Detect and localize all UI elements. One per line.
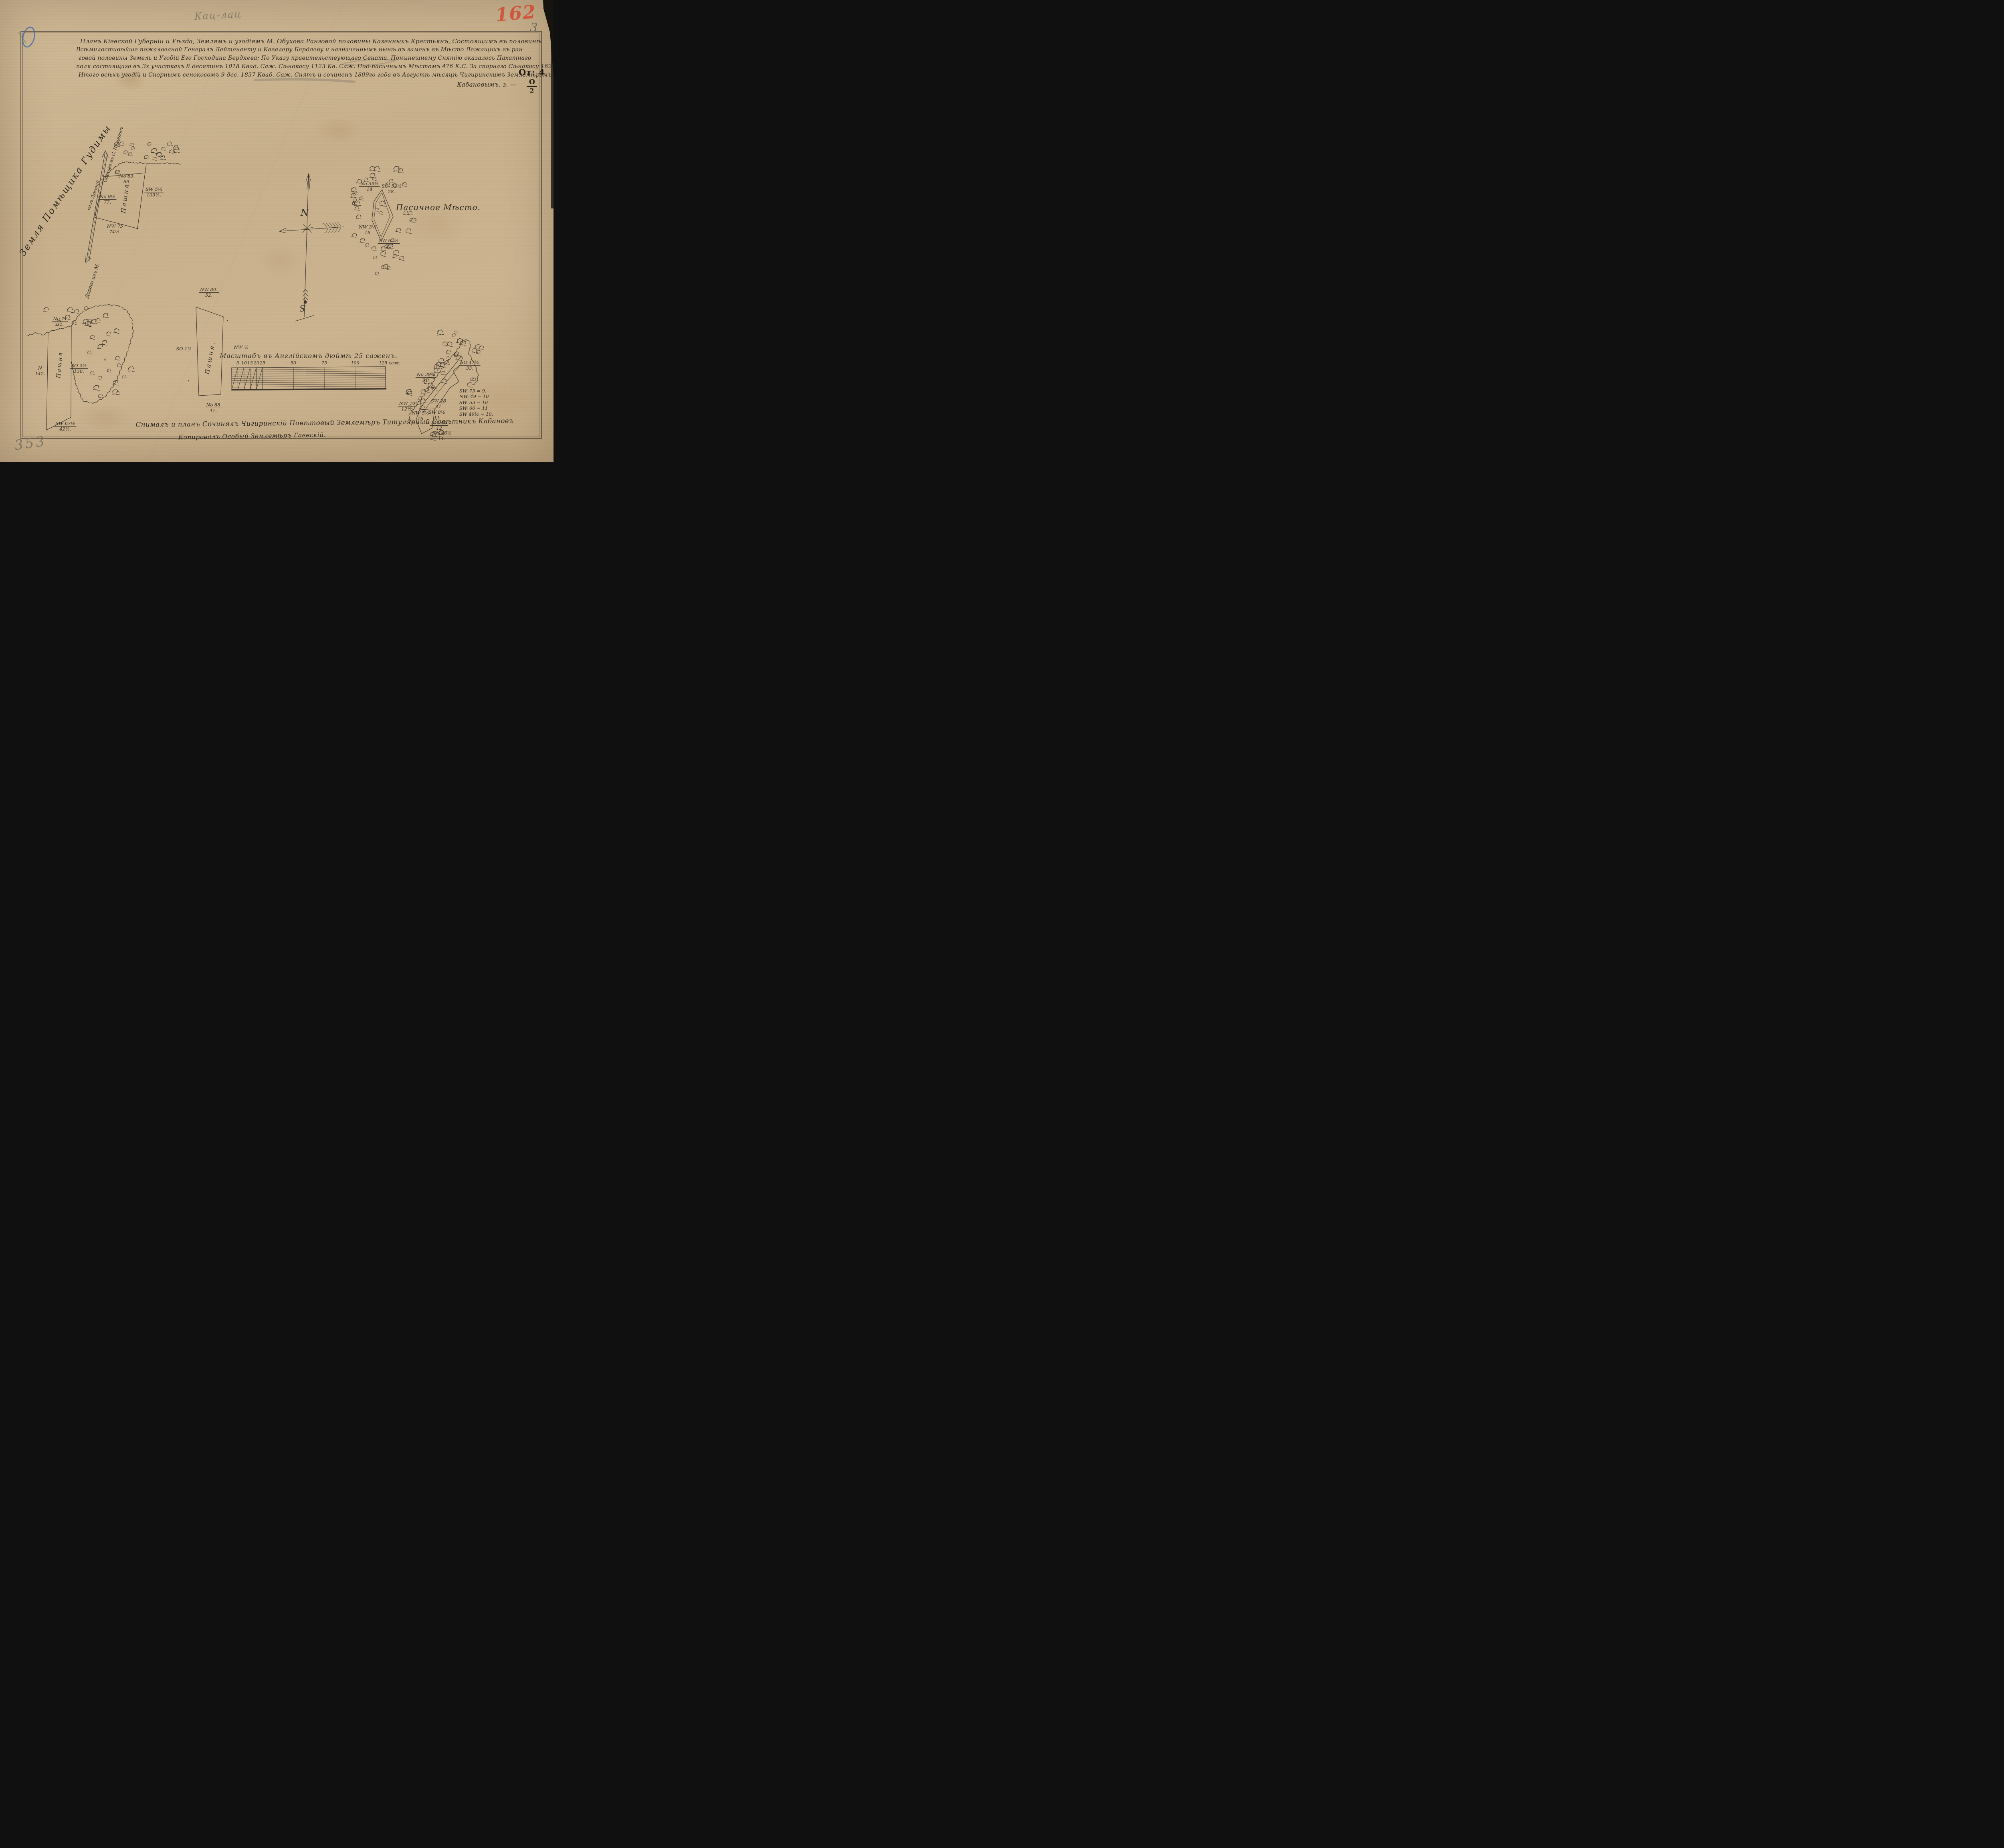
- scale-tick: 5: [236, 360, 239, 366]
- compass-south-label: S: [299, 304, 305, 313]
- scale-tick: 125 саж.: [379, 360, 400, 366]
- compass-north-label: N: [301, 208, 309, 218]
- compass-needle: [279, 174, 344, 321]
- bearing-label: SO. 52½28.: [380, 184, 403, 194]
- scale-tick: 25: [260, 360, 265, 366]
- bearing-label: NW ½: [233, 345, 250, 350]
- bearing-list: SW. 73 = 9. NW. 49 = 10 SW. 53 = 10 SW. …: [459, 388, 493, 417]
- scale-tick: 15: [247, 360, 253, 366]
- scale-bar: [232, 367, 386, 390]
- sheet-border: [21, 31, 541, 439]
- title-line-3: говой половины Земель и Угодій Его Госпо…: [79, 55, 531, 61]
- pencil-smudges: [255, 60, 396, 82]
- bearing-label: SW 46½14.: [430, 431, 453, 441]
- title-line-4: поля состоящаго въ 3х участкахъ 8 десяти…: [76, 63, 554, 70]
- bearing-label: SW 2821: [430, 398, 447, 409]
- bearing-label: No 7137.: [52, 316, 68, 327]
- title-line-5: Итого всѣхъ угодій и Спорнымъ сенокосомъ…: [79, 72, 552, 78]
- bearing-label: No 9½77.: [98, 194, 116, 205]
- bearing-label: No 83.69.: [118, 174, 136, 184]
- scale-tick: 50: [291, 360, 296, 366]
- scale-tick: 20: [254, 360, 259, 366]
- bearing-label: NW 3¼18: [358, 224, 378, 235]
- corner-page-number: 3: [529, 20, 538, 35]
- bearing-label: SW 67½23: [378, 238, 400, 249]
- bearing-label: NW 80.52.: [199, 287, 219, 298]
- bearing-label: SO 2½138.: [70, 363, 88, 374]
- bearing-label: NW 7574½.: [106, 224, 124, 235]
- bearing-label: SO 47¾33.: [459, 360, 481, 371]
- title-signature: Кабановымъ. з. —: [457, 81, 516, 88]
- apiary-name: Пасичное Мѣсто.: [396, 202, 481, 212]
- bearing-label: SW 5¼103½.: [144, 187, 164, 198]
- title-line-1: Планъ Кіевской Губерніи и Уѣзда, Землямъ…: [80, 38, 541, 45]
- scale-bar-title: Масштабъ въ Англійскомъ дюймѣ 25 саженъ.: [220, 352, 398, 360]
- scale-tick: 100: [351, 360, 360, 366]
- survey-plan-sheet: 162 3 Кац-лац 353 От: 4 О 2 Планъ Кіевск…: [0, 0, 554, 462]
- bearing-label: SW 67½42½.: [54, 421, 76, 432]
- scale-tick: 75: [321, 360, 327, 366]
- title-line-2: Всѣмилостивѣйше пожалованой Генералъ Лей…: [76, 47, 525, 53]
- tree-symbols: [43, 142, 485, 441]
- bearing-label: N142.: [35, 366, 45, 376]
- bearing-label: SO 1½: [175, 346, 193, 352]
- bearing-label: No 39½14: [359, 181, 380, 192]
- bearing-label: No 8847.: [205, 402, 221, 413]
- bearing-label: No 39¾91.: [416, 372, 436, 383]
- scale-tick: 10: [241, 360, 247, 366]
